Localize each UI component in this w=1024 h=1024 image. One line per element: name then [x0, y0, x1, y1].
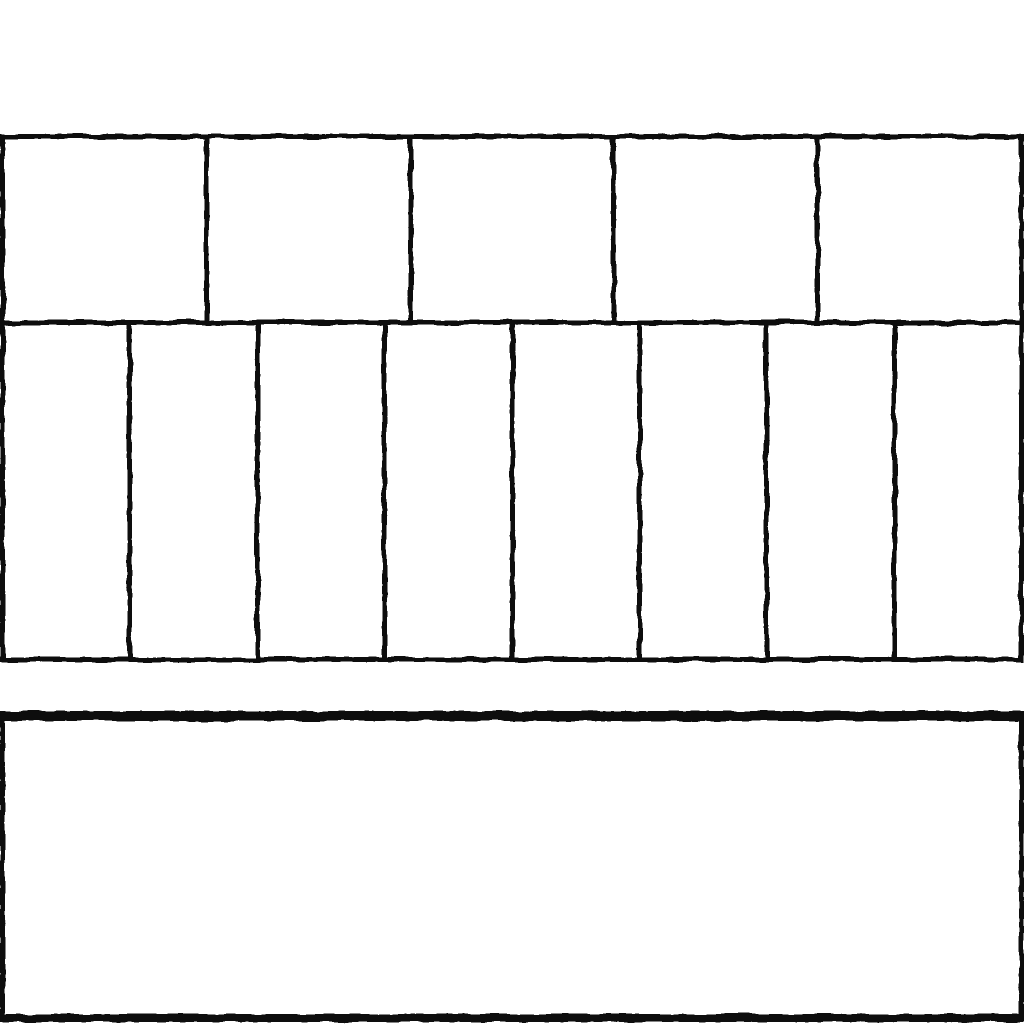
grid-cell [260, 325, 382, 657]
grid-cell [5, 139, 204, 320]
grid-cell [769, 325, 891, 657]
grid-cell [820, 139, 1019, 320]
grid-cell [642, 325, 764, 657]
grid-cell [5, 325, 127, 657]
sketch-canvas [0, 0, 1024, 1024]
grid-cell [515, 325, 637, 657]
grid-cell [132, 325, 254, 657]
bottom-panel [0, 711, 1024, 1022]
segmented-grid [0, 134, 1024, 662]
grid-row-top [5, 139, 1019, 320]
grid-cell [616, 139, 815, 320]
grid-cell [209, 139, 408, 320]
grid-cell [387, 325, 509, 657]
grid-row-middle [5, 325, 1019, 657]
grid-cell [413, 139, 612, 320]
grid-cell [897, 325, 1019, 657]
